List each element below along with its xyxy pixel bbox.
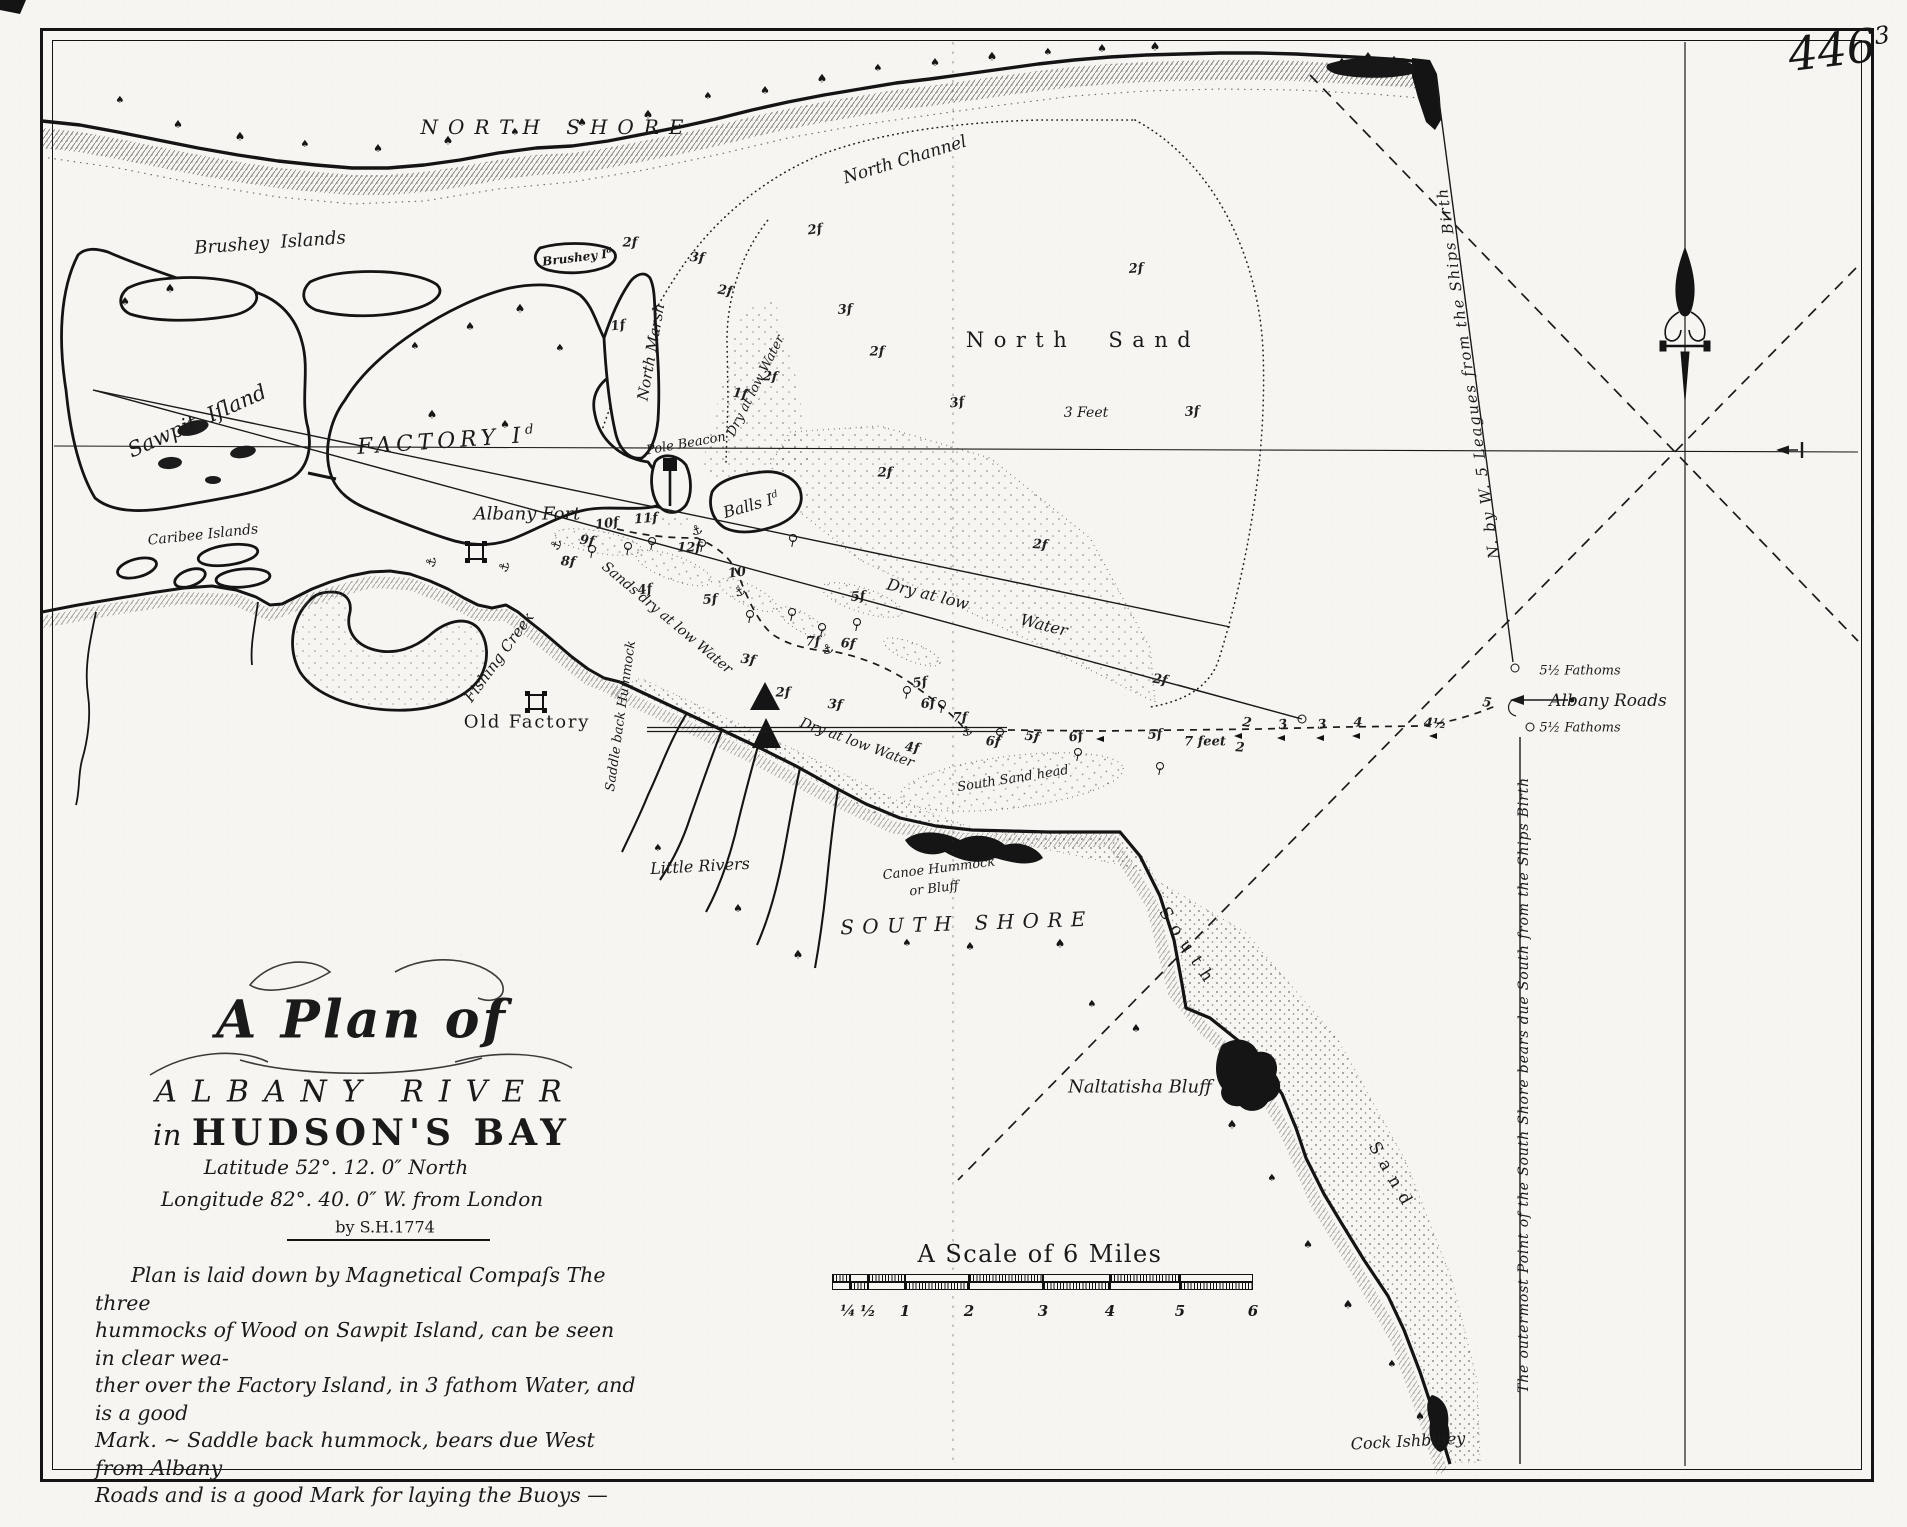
chart-title-line3-prefix: in	[153, 1118, 192, 1152]
page-number-main: 446	[1785, 18, 1879, 82]
scan-corner-mark	[0, 0, 26, 14]
note-line: Roads and is a good Mark for laying the …	[95, 1482, 640, 1510]
chart-page: NORTH SHORENorth ChannelNorth Sand3 Feet…	[0, 0, 1907, 1527]
note-line: Mark. ~ Saddle back hummock, bears due W…	[95, 1427, 640, 1482]
chart-title-line1: A Plan of	[216, 990, 508, 1051]
inner-border	[52, 40, 1862, 1470]
chart-title-line3-main: HUDSON'S BAY	[192, 1112, 571, 1154]
chart-title-line3: in HUDSON'S BAY	[153, 1112, 571, 1154]
note-line: Plan is laid down by Magnetical Compaſs …	[95, 1262, 640, 1317]
note-line: ther over the Factory Island, in 3 fatho…	[95, 1372, 640, 1427]
byline-rule	[287, 1239, 490, 1241]
note-line: hummocks of Wood on Sawpit Island, can b…	[95, 1317, 640, 1372]
chart-note: Plan is laid down by Magnetical Compaſs …	[95, 1262, 640, 1510]
chart-title-line2: ALBANY RIVER	[155, 1075, 576, 1110]
latitude-text: Latitude 52°. 12. 0″ North	[204, 1155, 468, 1179]
longitude-text: Longitude 82°. 40. 0″ W. from London	[161, 1187, 543, 1211]
page-number-superscript: 3	[1873, 21, 1892, 51]
byline-text: by S.H.1774	[335, 1218, 435, 1237]
